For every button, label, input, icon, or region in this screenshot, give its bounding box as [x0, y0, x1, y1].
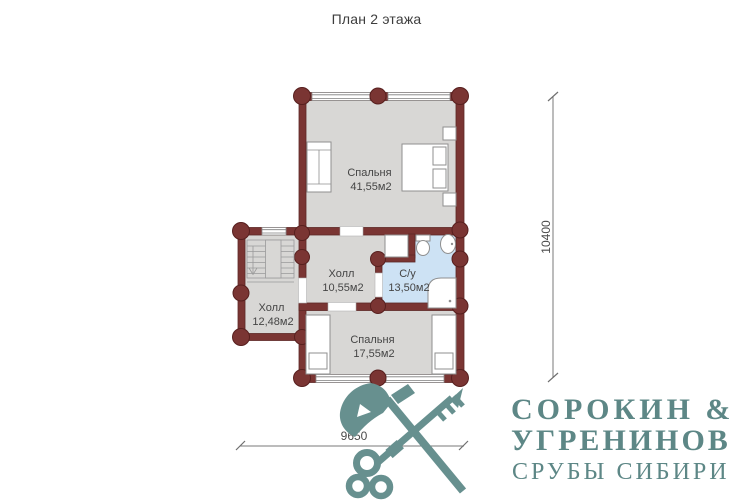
dimension-vertical-label: 10400 — [539, 220, 553, 254]
log-end — [295, 226, 310, 241]
toilet-icon — [416, 235, 430, 256]
nightstand-icon — [443, 127, 456, 140]
log-end — [294, 88, 311, 105]
key-bow-ring — [349, 477, 367, 495]
window-top-2 — [388, 93, 450, 101]
key-bow-ring — [357, 453, 378, 474]
page: План 2 этажа — [0, 0, 753, 502]
bed-icon — [306, 315, 330, 374]
key-bow-ring — [372, 478, 390, 496]
pillow-icon — [433, 169, 446, 188]
nightstand-icon — [443, 193, 456, 206]
door-bedroom1 — [340, 227, 363, 237]
log-end — [233, 223, 250, 240]
door-hall-left — [299, 278, 307, 303]
dimension-vertical: 10400 — [539, 92, 558, 382]
log-end — [452, 88, 469, 105]
bath-wall-a — [409, 234, 416, 258]
window-wing — [262, 228, 286, 236]
log-end — [371, 299, 386, 314]
divider2-left — [299, 303, 328, 311]
logo-name-line2: УГРЕНИНОВ — [511, 424, 731, 458]
log-end — [295, 250, 310, 265]
logo-name-line1: СОРОКИН & — [511, 393, 734, 427]
wing-wall-left — [238, 228, 245, 341]
shower-icon — [428, 278, 456, 308]
log-end — [371, 252, 386, 267]
window-bottom-1 — [316, 375, 370, 383]
pillow-icon — [309, 353, 327, 369]
closet-icon — [385, 235, 408, 257]
bed-icon — [432, 315, 456, 374]
log-end — [233, 329, 250, 346]
door-bedroom2 — [328, 303, 356, 312]
logo-tagline: СРУБЫ СИБИРИ — [512, 459, 730, 486]
sink-icon — [441, 235, 456, 254]
wardrobe-icon — [307, 142, 331, 192]
window-top-1 — [312, 93, 370, 101]
pillow-icon — [435, 353, 453, 369]
log-end — [452, 222, 468, 238]
axe-poll — [391, 384, 415, 404]
door-bathroom — [375, 273, 383, 297]
key-shaft — [376, 398, 452, 464]
log-end — [233, 285, 249, 301]
log-end — [370, 88, 386, 104]
window-bottom-2 — [386, 375, 444, 383]
pillow-icon — [433, 147, 446, 165]
log-end — [452, 251, 468, 267]
